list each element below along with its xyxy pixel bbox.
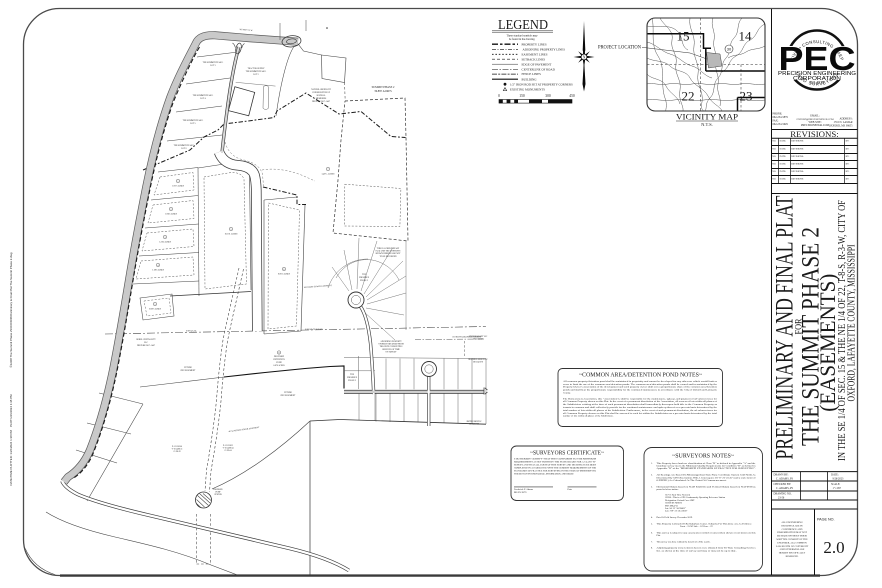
svg-text:TRI-STATE CONSULTING: TRI-STATE CONSULTING <box>380 345 403 348</box>
svg-text:23: 23 <box>740 89 753 104</box>
svg-text:LEGEND: LEGEND <box>498 17 548 32</box>
svg-text:CORS ID: MSOX: CORS ID: MSOX <box>665 503 682 505</box>
svg-text:SERVICES AT TIME: SERVICES AT TIME <box>382 348 400 351</box>
svg-text:15' UTILITY & DRAINAGE EASEMEN: 15' UTILITY & DRAINAGE EASEMENT <box>452 336 481 339</box>
svg-text:23-56: 23-56 <box>778 497 785 500</box>
svg-text:ponds and shall bear the propo: ponds and shall bear the proportionate r… <box>563 389 717 392</box>
svg-text:STATION: STATION <box>214 493 222 496</box>
svg-text:LLC: LLC <box>144 342 148 344</box>
svg-text:6: 6 <box>284 269 285 271</box>
svg-text:DRAWING NO.: DRAWING NO. <box>774 493 792 496</box>
svg-text:REVISIONS:: REVISIONS: <box>791 178 804 180</box>
svg-text:ADJOINING PROPERTY LINES: ADJOINING PROPERTY LINES <box>523 47 566 51</box>
svg-text:Horizontal Datum based on NAD: Horizontal Datum based on NAD 83(2011) a… <box>657 485 756 488</box>
svg-text:REVISIONS:: REVISIONS: <box>791 141 804 143</box>
svg-text:POND: POND <box>276 362 282 364</box>
svg-text:Z=396.19: Z=396.19 <box>173 451 180 453</box>
svg-text:DETENTION: DETENTION <box>273 359 285 361</box>
svg-text:NO.: NO. <box>772 163 776 165</box>
svg-text:1.180 ACRES: 1.180 ACRES <box>152 269 165 272</box>
svg-text:N.T.S.: N.T.S. <box>701 122 713 127</box>
svg-text:Date: Date <box>568 488 573 491</box>
svg-text:0.876 ACRES: 0.876 ACRES <box>273 364 284 367</box>
svg-text:14.07± ACRES: 14.07± ACRES <box>322 173 336 176</box>
svg-text:39.88± ACRES: 39.88± ACRES <box>374 90 392 93</box>
svg-text:This survey was done without t: This survey was done without the benefit… <box>657 540 711 543</box>
svg-text:LOT 3: LOT 3 <box>210 65 215 67</box>
svg-text:DATE:: DATE: <box>780 147 787 150</box>
svg-text:DEED BK 2017–1467: DEED BK 2017–1467 <box>137 345 155 347</box>
svg-text:NO.: NO. <box>772 178 776 180</box>
svg-text:22: 22 <box>682 89 695 104</box>
svg-text:OF SURVEY: OF SURVEY <box>386 351 397 353</box>
svg-text:300: 300 <box>545 94 551 98</box>
svg-text:5: 5 <box>231 229 232 231</box>
svg-text:REVISIONS:: REVISIONS: <box>791 171 804 173</box>
svg-text:PAGE NO.: PAGE NO. <box>817 518 835 522</box>
svg-text:~SURVEYORS CERTIFICATE~: ~SURVEYORS CERTIFICATE~ <box>530 451 605 457</box>
svg-text:SCALE:: SCALE: <box>831 483 841 486</box>
svg-text:LOT 2: LOT 2 <box>253 74 258 76</box>
svg-text:EASEMENT LINES: EASEMENT LINES <box>522 52 548 56</box>
svg-text:THE SUMMIT PHASE 1: THE SUMMIT PHASE 1 <box>193 94 214 97</box>
svg-text:BY:: BY: <box>846 163 850 165</box>
svg-text:This Property is Zoned (SCR) S: This Property is Zoned (SCR) Suburban Ce… <box>657 522 752 525</box>
svg-text:NO.: NO. <box>772 141 776 143</box>
svg-text:PROPERTY LINES: PROPERTY LINES <box>522 42 547 46</box>
svg-text:This Property has a land use c: This Property has a land use classificat… <box>657 462 756 465</box>
svg-text:0.999991) As Calculated At The: 0.999991) As Calculated At The Point Of … <box>657 479 728 482</box>
svg-text:SETBACK LINES: SETBACK LINES <box>522 57 546 61</box>
svg-text:PHASE 2: PHASE 2 <box>360 279 368 282</box>
svg-text:BY:: BY: <box>846 156 850 158</box>
svg-text:DB 2345-678: DB 2345-678 <box>473 361 483 363</box>
svg-text:DATE:: DATE: <box>780 155 787 158</box>
svg-text:150: 150 <box>519 94 525 98</box>
svg-text:Adjoining property owners show: Adjoining property owners shown hereon w… <box>657 547 756 550</box>
svg-text:Appendix "B" of the "MISSISSIP: Appendix "B" of the "MISSISSIPPI STANDAR… <box>657 467 757 470</box>
svg-text:5: 5 <box>155 304 156 306</box>
svg-text:Front = 25/50' Side = 10': Front = 25/50' Side = 10' Rear = 25' <box>680 526 714 528</box>
svg-text:OXFORD, LAFAYETTE COUNTY, MISS: OXFORD, LAFAYETTE COUNTY, MISSISSIPPI <box>846 245 857 402</box>
svg-text:15: 15 <box>677 29 690 44</box>
svg-text:NO.: NO. <box>772 171 776 173</box>
svg-text:DATE:: DATE: <box>780 177 787 180</box>
svg-text:Plat.: Plat. <box>657 535 662 537</box>
svg-text:TRACTOR SUPPLY: TRACTOR SUPPLY <box>247 67 265 70</box>
svg-text:DATE:: DATE: <box>780 162 787 165</box>
svg-text:1: 1 <box>178 181 179 183</box>
svg-text:1/2" IRON ROD SET AT PROPERTY: 1/2" IRON ROD SET AT PROPERTY CORNERS <box>510 82 573 86</box>
svg-text:THE SUMMIT PHASE 1: THE SUMMIT PHASE 1 <box>174 144 195 147</box>
svg-text:PRESERVE: PRESERVE <box>359 277 370 279</box>
svg-text:DB 3456-789: DB 3456-789 <box>469 423 479 425</box>
svg-text:PHASE 2: PHASE 2 <box>348 379 356 382</box>
svg-text:Lat: 34° 21' 58.95863": Lat: 34° 21' 58.95863" <box>665 507 686 510</box>
svg-text:PID: DK4713: PID: DK4713 <box>665 505 679 507</box>
svg-text:REVISIONS:: REVISIONS: <box>791 163 804 165</box>
svg-text:Determined By GPS Observations: Determined By GPS Observations With A Co… <box>657 476 756 479</box>
svg-text:LOT 6: LOT 6 <box>181 148 186 150</box>
svg-text:8: 8 <box>279 352 280 354</box>
svg-text:DATE/TIME PLOTTED: 1/26/2024 1: DATE/TIME PLOTTED: 1/26/2024 1:38 PM PLO… <box>9 394 13 486</box>
svg-text:boundary survey meets the Mini: boundary survey meets the Minimum Qualit… <box>657 465 757 468</box>
svg-text:OWNERS OBTAINED FROM: OWNERS OBTAINED FROM <box>378 343 403 346</box>
svg-text:BY:: BY: <box>846 148 850 150</box>
svg-text:7: 7 <box>328 169 329 171</box>
svg-text:MS PS 2879: MS PS 2879 <box>514 491 527 494</box>
svg-text:THIS IS A PRELIMINARY: THIS IS A PRELIMINARY <box>377 247 400 250</box>
svg-text:CORS - This is a GPS Continuou: CORS - This is a GPS Continuously Operat… <box>665 496 726 499</box>
svg-text:GCVC Real Time Network: GCVC Real Time Network <box>665 495 691 497</box>
svg-text:S 88°14'14"E 2642.07': S 88°14'14"E 2642.07' <box>305 328 323 331</box>
svg-text:662-234-5629: 662-234-5629 <box>773 123 789 126</box>
svg-text:This survey is subject to any: This survey is subject to any easements … <box>657 532 756 534</box>
svg-text:PRECISIONENGR.COM: PRECISIONENGR.COM <box>801 124 830 127</box>
svg-text:4: 4 <box>158 265 159 267</box>
svg-text:DATE:: DATE: <box>780 170 787 173</box>
svg-text:450: 450 <box>569 94 575 98</box>
svg-text:C. ADAMS, PS: C. ADAMS, PS <box>776 487 794 490</box>
svg-text:REVISIONS:: REVISIONS: <box>790 129 838 139</box>
svg-text:THE SUMMIT PHASE 1: THE SUMMIT PHASE 1 <box>246 70 267 73</box>
svg-text:2.0: 2.0 <box>823 538 844 557</box>
svg-text:SHOWN HEREON ARE NOT: SHOWN HEREON ARE NOT <box>376 252 402 255</box>
svg-text:RESERVED.: RESERVED. <box>786 555 799 558</box>
svg-text:PRESERVE: PRESERVE <box>347 377 358 379</box>
svg-text:FUTURE: FUTURE <box>284 392 293 394</box>
svg-text:NO.: NO. <box>772 148 776 150</box>
svg-text:PROJECT LOCATION: PROJECT LOCATION <box>598 46 642 51</box>
svg-text:3: 3 <box>165 237 166 239</box>
svg-text:OXFORD, MS 38655: OXFORD, MS 38655 <box>829 125 853 128</box>
svg-text:1.060 ACRES: 1.060 ACRES <box>165 213 178 216</box>
svg-text:Designation: Oxford Core AMF: Designation: Oxford Core AMF <box>665 499 695 502</box>
svg-text:REBEL CENTRALITY: REBEL CENTRALITY <box>136 338 156 341</box>
svg-text:CENTERLINE OF ROAD: CENTERLINE OF ROAD <box>522 67 556 71</box>
svg-text:THE BEST OF MY KNOWLEDGE, INFO: THE BEST OF MY KNOWLEDGE, INFORMATION, A… <box>514 472 574 475</box>
svg-text:ADJOINING PROPERTY: ADJOINING PROPERTY <box>380 340 402 343</box>
svg-text:be found in the drawing.: be found in the drawing. <box>509 38 536 41</box>
svg-text:PLAT AND THE CONTENTS: PLAT AND THE CONTENTS <box>376 250 401 253</box>
svg-text:CHECKED BY:: CHECKED BY: <box>774 483 792 486</box>
svg-text:DEVELOPMENT: DEVELOPMENT <box>281 395 297 397</box>
svg-text:REVISIONS:: REVISIONS: <box>791 156 804 158</box>
svg-text:BY:: BY: <box>846 171 850 173</box>
svg-text:30: 30 <box>727 47 732 52</box>
svg-text:SEVERAL: SEVERAL <box>317 94 327 97</box>
svg-text:NO.: NO. <box>772 156 776 158</box>
svg-text:EDGE OF PAVEMENT: EDGE OF PAVEMENT <box>522 62 552 66</box>
svg-text:©12/08 The Summit Phase 2\OXF: ©12/08 The Summit Phase 2\OXFORD\Prelimi… <box>9 252 13 367</box>
svg-text:DEVELOPMENT: DEVELOPMENT <box>181 370 197 372</box>
svg-text:C. ADAMS, PS: C. ADAMS, PS <box>776 477 794 480</box>
svg-text:Z=395.04: Z=395.04 <box>224 450 231 452</box>
svg-text:DATE:: DATE: <box>831 473 839 476</box>
svg-text:0.887 ACRES: 0.887 ACRES <box>149 308 162 311</box>
svg-text:1.007 ACRES: 1.007 ACRES <box>172 185 185 188</box>
svg-text:DATE:: DATE: <box>780 140 787 143</box>
svg-text:BUILDING: BUILDING <box>522 77 538 81</box>
svg-text:THE SUMMIT PHASE 1: THE SUMMIT PHASE 1 <box>203 61 224 64</box>
svg-text:posted to below station:: posted to below station: <box>657 489 679 491</box>
svg-text:SUMMIT PHASE 2: SUMMIT PHASE 2 <box>372 86 395 89</box>
svg-text:All Bearings Are Based On Miss: All Bearings Are Based On Mississippi Ea… <box>657 474 756 477</box>
svg-text:DRAWN BY:: DRAWN BY: <box>774 473 789 476</box>
svg-text:DEED BK 2017–1467: DEED BK 2017–1467 <box>312 101 330 103</box>
svg-text:BY:: BY: <box>846 178 850 180</box>
svg-text:NATURE ABUNDANT: NATURE ABUNDANT <box>311 88 331 91</box>
svg-text:Date Of Field Survey: December: Date Of Field Survey: December 2019. <box>657 516 694 519</box>
svg-text:10.101 ACRES: 10.101 ACRES <box>225 233 239 236</box>
svg-text:2: 2 <box>171 209 172 211</box>
svg-text:N: N <box>582 55 586 60</box>
svg-text:Lon: -89° 31' 56.51638": Lon: -89° 31' 56.51638" <box>665 510 687 513</box>
svg-text:0: 0 <box>498 94 500 98</box>
svg-text:CONSERVATION OF: CONSERVATION OF <box>312 91 331 94</box>
svg-text:REVISIONS:: REVISIONS: <box>791 148 804 150</box>
svg-text:8.801 ACRES: 8.801 ACRES <box>278 273 291 276</box>
svg-text:Est. 1976: Est. 1976 <box>810 80 824 84</box>
svg-text:S 88°14'14"E: S 88°14'14"E <box>186 330 197 333</box>
svg-text:TO BE RECORDED: TO BE RECORDED <box>380 256 398 258</box>
svg-text:~SURVEYORS NOTES~: ~SURVEYORS NOTES~ <box>672 452 735 459</box>
svg-text:LOT 5: LOT 5 <box>190 123 195 125</box>
svg-text:9/26/2023: 9/26/2023 <box>833 477 845 480</box>
svg-text:~COMMON AREA/DETENTION POND NO: ~COMMON AREA/DETENTION POND NOTES~ <box>579 372 702 379</box>
svg-text:number of lots within all phas: number of lots within all phases of the … <box>563 415 614 418</box>
svg-text:Inc. as shown at the time of s: Inc. as shown at the time of survey and … <box>657 549 738 552</box>
svg-text:County.: County. <box>563 392 571 395</box>
svg-text:FUTURE: FUTURE <box>184 367 193 369</box>
svg-text:VICINITY MAP: VICINITY MAP <box>676 113 738 122</box>
svg-text:LOT 4: LOT 4 <box>200 98 205 100</box>
svg-text:14: 14 <box>739 29 753 44</box>
svg-text:MEMORIES: MEMORIES <box>316 98 327 100</box>
svg-text:1.226 ACRES: 1.226 ACRES <box>159 241 172 244</box>
svg-text:THE SUMMIT PHASE 1: THE SUMMIT PHASE 1 <box>183 119 204 122</box>
svg-text:FENCE LINES: FENCE LINES <box>522 72 542 76</box>
svg-text:DB 1234-567: DB 1234-567 <box>473 338 483 340</box>
svg-text:1"=150': 1"=150' <box>833 487 842 490</box>
svg-text:EXISTING MONUMENTS: EXISTING MONUMENTS <box>510 87 545 91</box>
svg-text:PROPOSED: PROPOSED <box>274 356 285 358</box>
svg-text:BY:: BY: <box>846 141 850 143</box>
